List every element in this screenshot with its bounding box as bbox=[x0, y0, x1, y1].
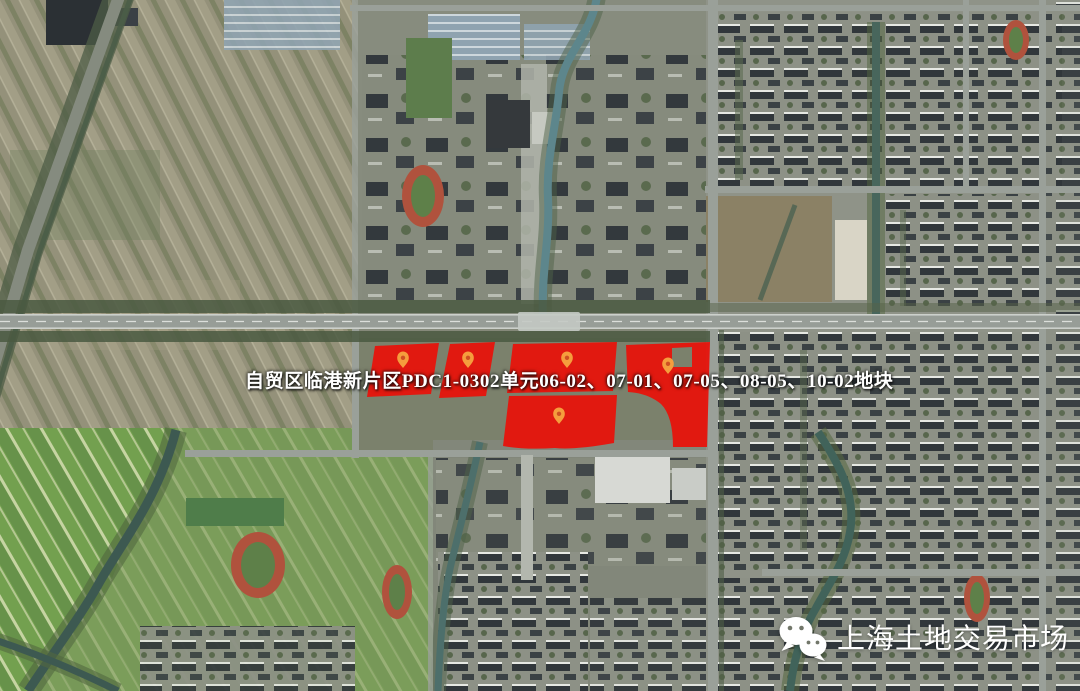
tennis-courts bbox=[186, 498, 284, 526]
stadium-field bbox=[241, 542, 275, 588]
vacant-brown-lot bbox=[706, 196, 832, 302]
watermark: 上海土地交易市场 bbox=[778, 616, 1069, 662]
pin-dot bbox=[565, 356, 569, 360]
road-vertical-east bbox=[1039, 0, 1046, 691]
residential-rows-southwest bbox=[140, 626, 355, 691]
tree-strip bbox=[735, 40, 743, 180]
canal-bridge bbox=[518, 312, 580, 331]
large-white-roof-building bbox=[595, 455, 670, 503]
school-track-northeast-field bbox=[1009, 27, 1023, 53]
sports-courts bbox=[406, 38, 452, 118]
white-roof-building bbox=[672, 468, 710, 500]
running-track-field bbox=[411, 175, 435, 217]
watermark-text: 上海土地交易市场 bbox=[837, 625, 1069, 653]
satellite-basemap bbox=[0, 0, 1080, 691]
road-campus-west bbox=[352, 0, 358, 318]
road-southeast bbox=[762, 569, 1080, 576]
tree-belt-road-south bbox=[0, 331, 710, 342]
wechat-eye bbox=[788, 626, 793, 631]
auditorium-building bbox=[486, 100, 530, 148]
tree-belt-road-north bbox=[0, 300, 710, 313]
pin-dot bbox=[466, 356, 470, 360]
solar-panel-array bbox=[224, 0, 340, 50]
pin-dot bbox=[557, 412, 561, 416]
parcel-title-label: 自贸区临港新片区PDC1-0302单元06-02、07-01、07-05、08-… bbox=[245, 366, 965, 393]
wechat-bubble-small bbox=[800, 634, 827, 657]
road-east-horizontal bbox=[705, 186, 1080, 193]
wechat-icon bbox=[778, 616, 828, 662]
land-announcement-map: 自贸区临港新片区PDC1-0302单元06-02、07-01、07-05、08-… bbox=[0, 0, 1080, 691]
wechat-eye bbox=[799, 626, 804, 631]
road-vertical-ne bbox=[963, 0, 969, 192]
residential-edge bbox=[1046, 0, 1080, 691]
road-campus-south bbox=[428, 457, 433, 691]
apartment-rows bbox=[590, 598, 708, 691]
wechat-eye bbox=[807, 641, 811, 645]
construction-site bbox=[835, 220, 867, 300]
running-track-south-field bbox=[389, 574, 405, 610]
road-parcel-south bbox=[185, 450, 712, 457]
campus-south-axis bbox=[521, 455, 533, 580]
pin-dot bbox=[401, 356, 405, 360]
school-track-southeast-field bbox=[970, 582, 984, 614]
residential-blocks-east bbox=[885, 194, 1043, 310]
apartment-rows bbox=[438, 552, 588, 691]
wechat-eye bbox=[816, 641, 820, 645]
tree-strip bbox=[900, 210, 906, 306]
tree-belt-road-east bbox=[710, 303, 1080, 312]
